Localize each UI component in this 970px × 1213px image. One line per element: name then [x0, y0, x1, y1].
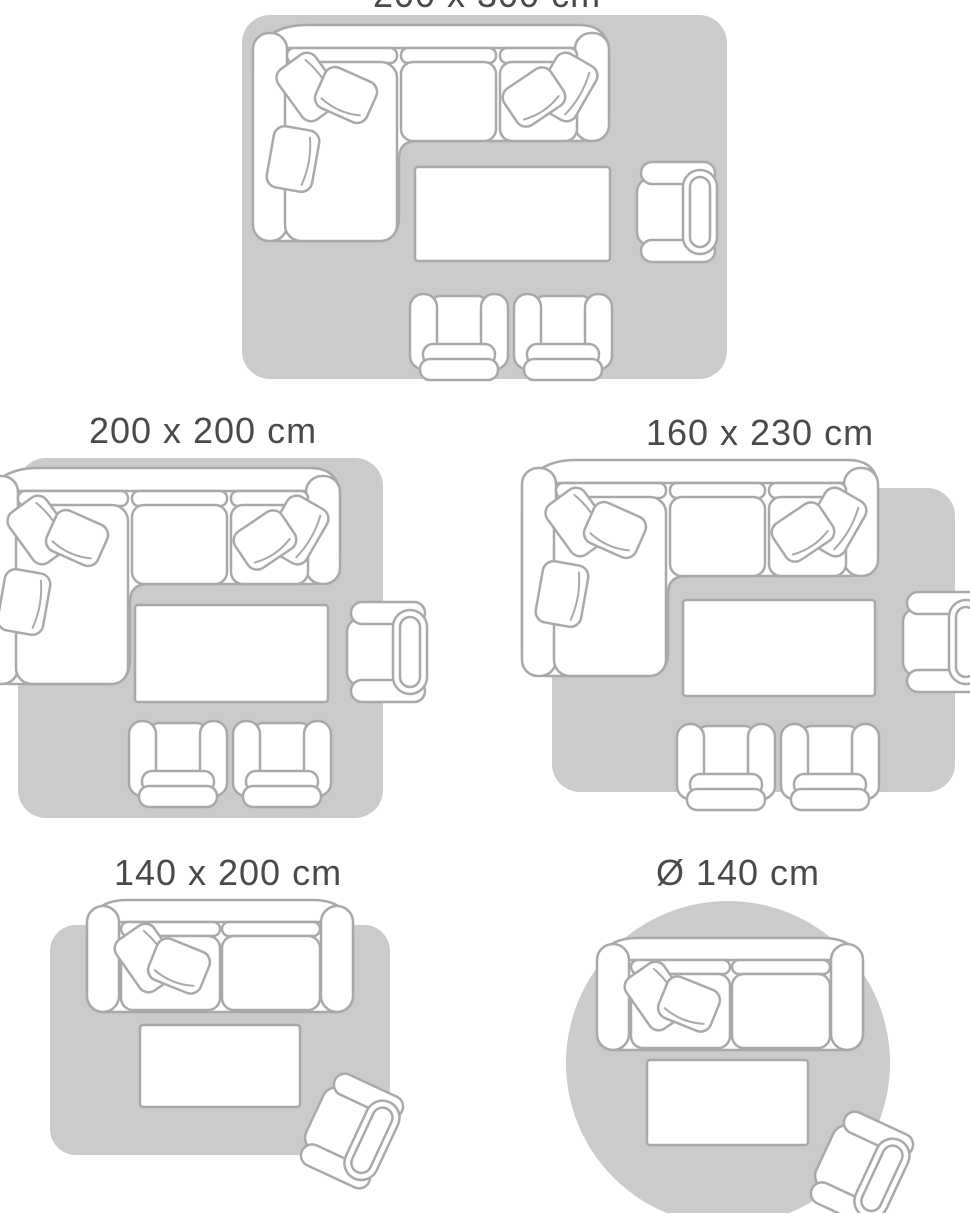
size-label-200x200: 200 x 200 cm	[89, 411, 317, 451]
accent-chair-illustration	[410, 294, 508, 380]
size-guide-illustration	[0, 0, 970, 1213]
layout-variant-200x200	[0, 458, 427, 818]
armchair-illustration	[347, 602, 427, 702]
two-seat-sofa-illustration	[87, 900, 353, 1012]
size-label-160x230: 160 x 230 cm	[646, 413, 874, 453]
layout-variant-200x300	[242, 15, 727, 380]
size-label-d140: Ø 140 cm	[656, 853, 820, 893]
coffee-table-illustration	[683, 600, 875, 696]
accent-chair-illustration	[129, 721, 227, 807]
size-label-140x200: 140 x 200 cm	[114, 853, 342, 893]
two-seat-sofa-illustration	[597, 938, 863, 1050]
armchair-illustration	[903, 592, 970, 692]
layout-variant-140x200	[50, 900, 408, 1193]
coffee-table-illustration	[140, 1025, 300, 1107]
accent-chair-illustration	[514, 294, 612, 380]
size-label-200x300: 200 x 300 cm	[373, 0, 601, 15]
layout-variant-d140	[566, 901, 918, 1213]
accent-chair-illustration	[233, 721, 331, 807]
layout-variant-160x230	[522, 460, 970, 810]
coffee-table-illustration	[647, 1060, 808, 1145]
rug-size-guide: 200 x 300 cm 200 x 200 cm 160 x 230 cm 1…	[0, 0, 970, 1213]
armchair-illustration	[637, 162, 717, 262]
coffee-table-illustration	[135, 605, 328, 702]
coffee-table-illustration	[415, 167, 610, 261]
accent-chair-illustration	[677, 724, 775, 810]
accent-chair-illustration	[781, 724, 879, 810]
